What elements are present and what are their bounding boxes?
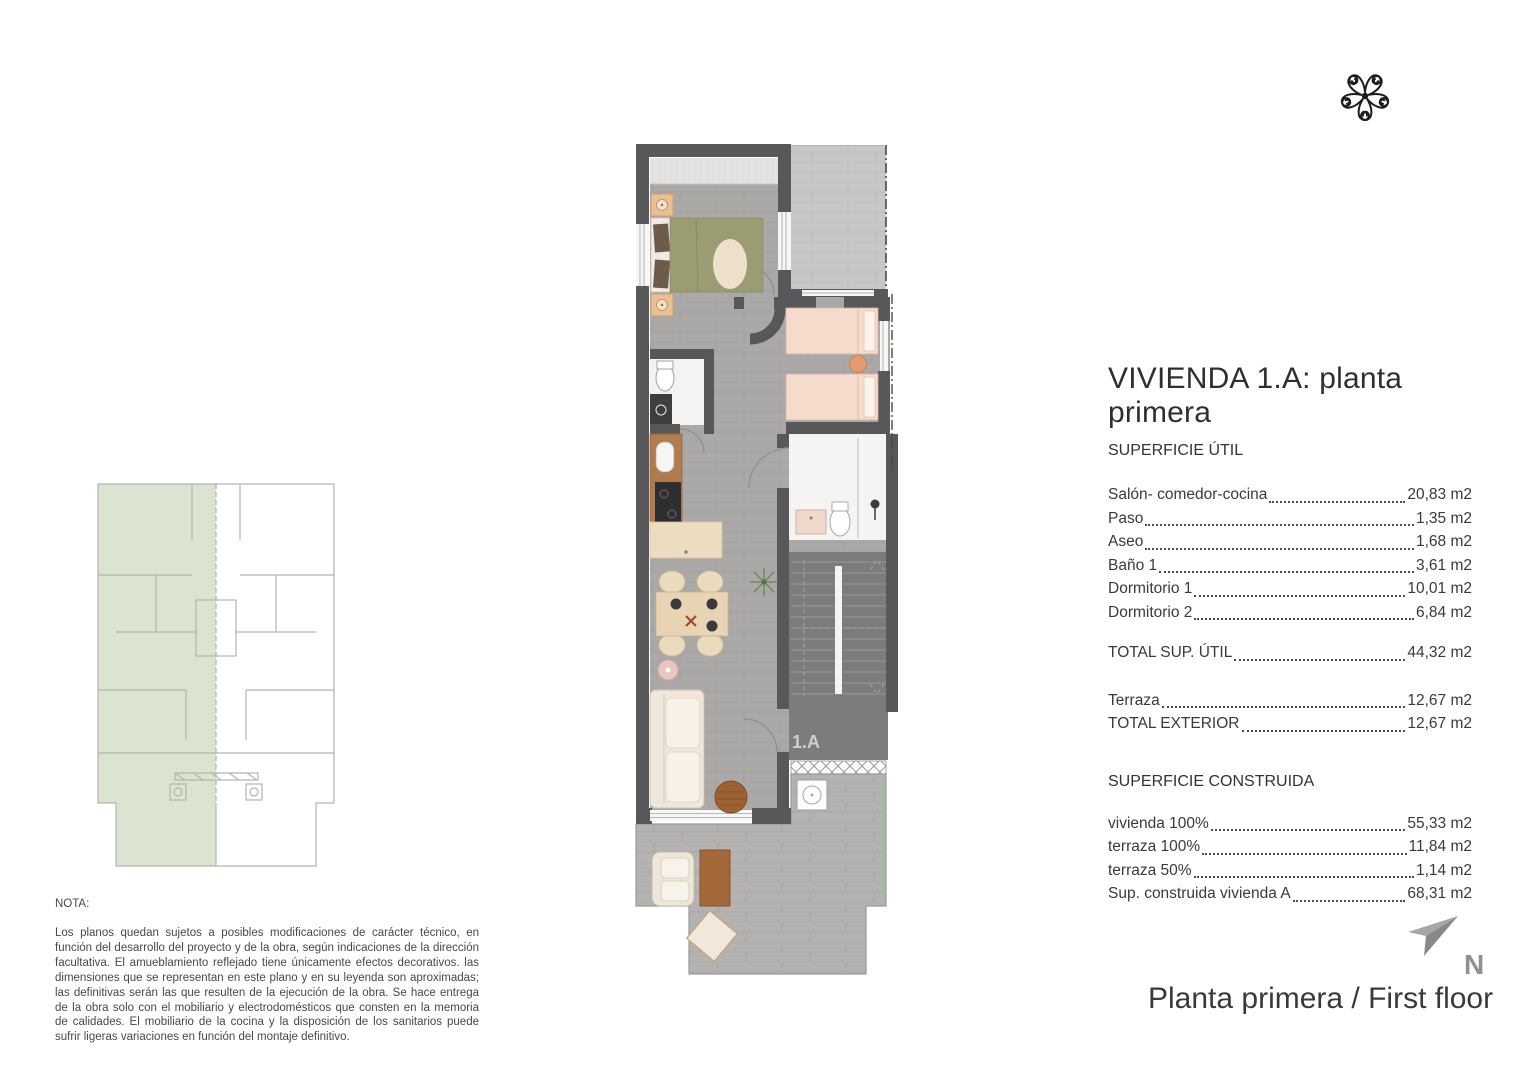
- leader-dots: [1194, 875, 1414, 878]
- keyplan-location-thumbnail: [96, 480, 338, 872]
- leader-dots: [1269, 500, 1405, 503]
- leader-dots: [1159, 570, 1414, 573]
- aseo-wc: [650, 359, 704, 426]
- dining-table: [656, 592, 728, 636]
- entry-doormat: [791, 761, 886, 774]
- leader-dots: [1194, 594, 1405, 597]
- leader-dots: [1145, 523, 1414, 526]
- area-row: Sup. construida vivienda A68,31 m2: [1108, 882, 1472, 906]
- nota-heading: NOTA:: [55, 898, 479, 910]
- page-title: VIVIENDA 1.A: planta primera: [1108, 362, 1472, 430]
- nota-block: NOTA: Los planos quedan sujetos a posibl…: [55, 898, 479, 1045]
- leader-dots: [1293, 899, 1406, 902]
- bathroom: [789, 434, 890, 540]
- single-bed: [786, 374, 878, 420]
- exterior-rows: Terraza12,67 m2 TOTAL EXTERIOR12,67 m2: [1108, 689, 1472, 736]
- area-row: Paso1,35 m2: [1108, 507, 1472, 531]
- double-bed: [651, 218, 763, 292]
- area-row: TOTAL EXTERIOR12,67 m2: [1108, 712, 1472, 736]
- superficie-util-heading: SUPERFICIE ÚTIL: [1108, 442, 1472, 460]
- leader-dots: [1234, 658, 1405, 661]
- leader-dots: [1145, 547, 1414, 550]
- north-arrow-icon: N: [1396, 910, 1506, 985]
- plan-sheet: 1.A: [0, 0, 1528, 1080]
- wardrobe: [650, 158, 779, 184]
- total-util-row-block: TOTAL SUP. ÚTIL44,32 m2: [1108, 641, 1472, 665]
- area-row: Salón- comedor-cocina20,83 m2: [1108, 483, 1472, 507]
- area-row: Baño 13,61 m2: [1108, 554, 1472, 578]
- brand-rosette-logo-icon: [1333, 62, 1397, 130]
- floorplan-unit-1a: 1.A: [634, 142, 924, 980]
- area-row: Aseo1,68 m2: [1108, 530, 1472, 554]
- round-nightstand: [850, 356, 867, 373]
- north-label: N: [1464, 949, 1484, 980]
- superficie-construida-rows: vivienda 100% 55,33 m2 terraza 100%11,84…: [1108, 812, 1472, 906]
- terrace-upper: [791, 145, 888, 297]
- leader-dots: [1242, 729, 1406, 732]
- kitchen-sink: [656, 442, 674, 472]
- leader-dots: [1194, 617, 1414, 620]
- stair-handrail: [835, 566, 842, 694]
- total-row: TOTAL SUP. ÚTIL44,32 m2: [1108, 641, 1472, 665]
- area-row: Dormitorio 26,84 m2: [1108, 601, 1472, 625]
- sofa: [650, 690, 704, 808]
- unit-label: 1.A: [792, 732, 820, 752]
- floor-title: Planta primera / First floor: [1148, 982, 1493, 1016]
- superficie-util-rows: Salón- comedor-cocina20,83 m2 Paso1,35 m…: [1108, 483, 1472, 624]
- leader-dots: [1162, 705, 1406, 708]
- superficie-construida-heading: SUPERFICIE CONSTRUIDA: [1108, 773, 1472, 791]
- stairwell: 1.A: [789, 552, 888, 774]
- plant: [750, 568, 778, 596]
- area-row: Dormitorio 110,01 m2: [1108, 577, 1472, 601]
- area-info-panel: VIVIENDA 1.A: planta primera SUPERFICIE …: [1108, 362, 1472, 906]
- washing-machine: [797, 780, 827, 810]
- area-row: terraza 100%11,84 m2: [1108, 835, 1472, 859]
- area-row: Terraza12,67 m2: [1108, 689, 1472, 713]
- leader-dots: [1211, 828, 1406, 831]
- coffee-table: [715, 781, 747, 813]
- terrace-table: [700, 850, 730, 906]
- nota-body: Los planos quedan sujetos a posibles mod…: [55, 926, 479, 1045]
- single-bed: [786, 308, 878, 354]
- area-row: terraza 50%1,14 m2: [1108, 859, 1472, 883]
- terrace-armchair: [652, 852, 694, 906]
- area-row: vivienda 100% 55,33 m2: [1108, 812, 1472, 836]
- leader-dots: [1202, 852, 1406, 855]
- cooktop: [655, 482, 681, 528]
